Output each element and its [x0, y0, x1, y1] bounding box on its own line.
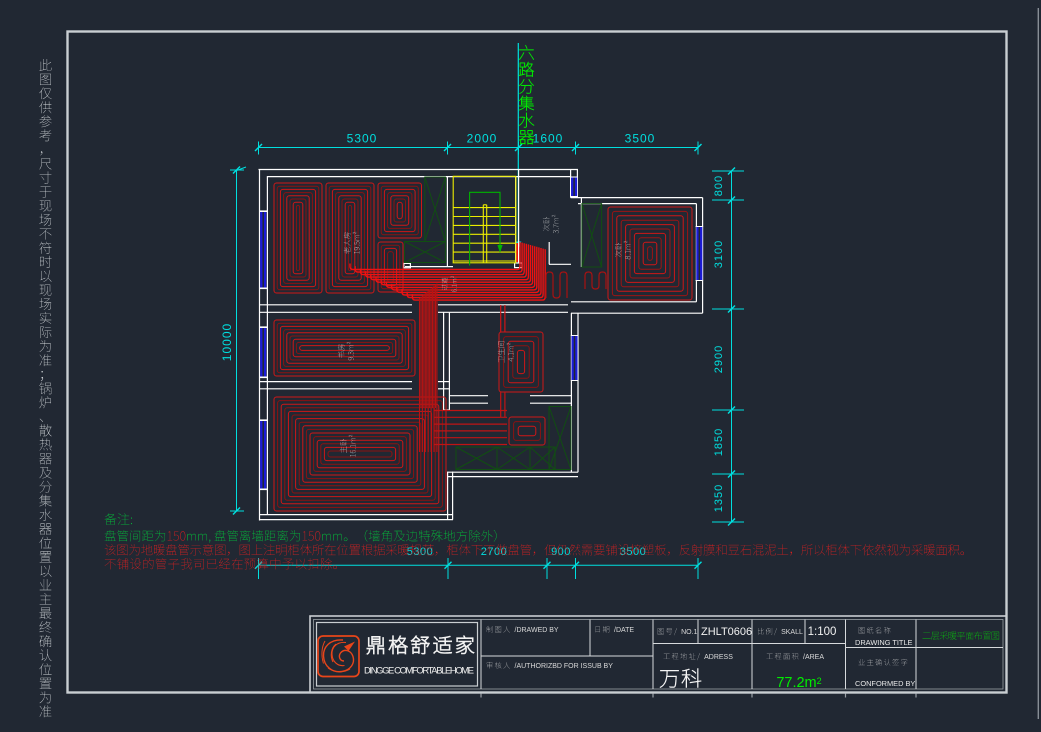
- svg-text:1350: 1350: [713, 484, 725, 512]
- svg-text:/DRAWED BY: /DRAWED BY: [515, 627, 559, 634]
- svg-text:2900: 2900: [713, 345, 725, 373]
- svg-text:900: 900: [551, 546, 571, 558]
- svg-text:3100: 3100: [713, 240, 725, 268]
- svg-text:/AUTHORIZBD FOR ISSUB BY: /AUTHORIZBD FOR ISSUB BY: [515, 663, 614, 670]
- svg-text:1:100: 1:100: [808, 626, 837, 638]
- svg-text:5300: 5300: [347, 132, 378, 146]
- svg-text:DRAWING TITLE: DRAWING TITLE: [855, 638, 913, 647]
- svg-text:/AREA: /AREA: [803, 654, 824, 661]
- svg-text:77.2m2: 77.2m2: [776, 675, 821, 691]
- svg-text:SKALL: SKALL: [781, 629, 803, 636]
- svg-text:1600: 1600: [533, 132, 564, 146]
- svg-text:CONFORMED BY: CONFORMED BY: [855, 679, 915, 688]
- svg-text:NO.1: NO.1: [681, 629, 697, 636]
- svg-text:10000: 10000: [220, 323, 234, 361]
- svg-text:ADRESS: ADRESS: [704, 654, 733, 661]
- svg-text:3500: 3500: [625, 132, 656, 146]
- svg-text:DINGGE COMFORTABLEHOME: DINGGE COMFORTABLEHOME: [364, 665, 474, 676]
- svg-text:/DATE: /DATE: [614, 627, 634, 634]
- svg-text:2000: 2000: [467, 132, 498, 146]
- svg-text:800: 800: [713, 175, 725, 196]
- svg-text:ZHLT0606: ZHLT0606: [701, 626, 752, 638]
- svg-text:5300: 5300: [407, 546, 433, 558]
- svg-text:1850: 1850: [713, 428, 725, 456]
